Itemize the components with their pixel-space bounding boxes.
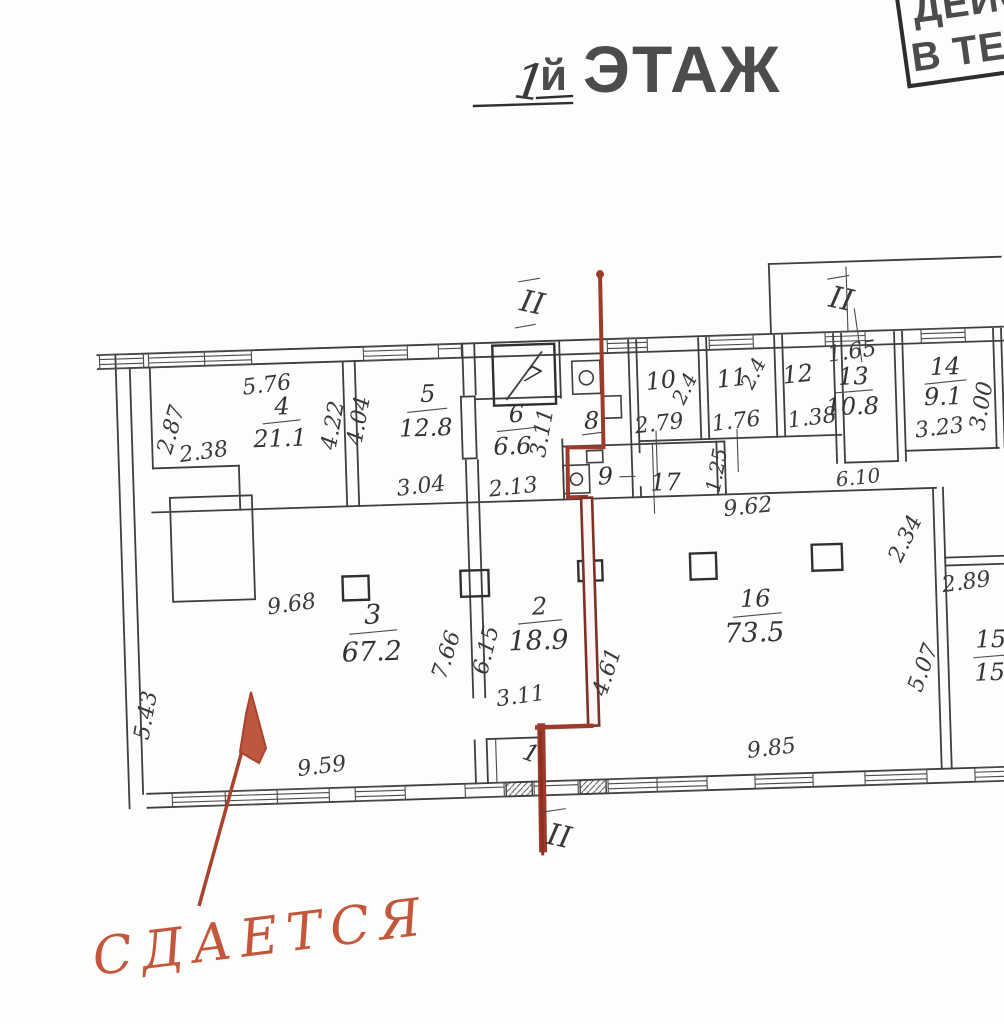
dim: 2.89 bbox=[939, 567, 992, 599]
dim: 3.11 bbox=[495, 681, 547, 712]
annex-outline bbox=[769, 257, 1003, 334]
svg-text:73.5: 73.5 bbox=[724, 617, 785, 650]
bottom-exterior-wall bbox=[147, 766, 1004, 807]
svg-text:12.8: 12.8 bbox=[399, 413, 453, 443]
svg-text:6: 6 bbox=[508, 400, 524, 428]
dim: 4.04 bbox=[342, 394, 375, 448]
dim: 3.23 bbox=[914, 413, 966, 444]
corner-stamp: ДЕЙС В ТЕЧ bbox=[877, 0, 1004, 86]
section-marks: II II II bbox=[513, 268, 875, 857]
room-label-7: 7 bbox=[518, 360, 545, 392]
svg-text:2: 2 bbox=[530, 592, 547, 620]
room-label-3: 3 67.2 bbox=[340, 599, 402, 669]
svg-text:5: 5 bbox=[420, 380, 436, 408]
dim: 2.38 bbox=[177, 437, 230, 469]
room-label-4: 4 21.1 bbox=[251, 392, 307, 454]
room-label-8: 8 bbox=[581, 406, 602, 435]
svg-text:67.2: 67.2 bbox=[341, 636, 402, 669]
room-label-12: 12 bbox=[781, 359, 814, 390]
plan: II II II 4 21.1 5 12.8 6 6.6 bbox=[95, 257, 1004, 871]
section-mark-top: II bbox=[516, 283, 549, 323]
dim: 2.34 bbox=[883, 511, 927, 567]
room-label-16: 16 73.5 bbox=[723, 584, 785, 650]
svg-text:15: 15 bbox=[975, 625, 1004, 654]
dim: 9.59 bbox=[296, 751, 348, 782]
svg-text:14: 14 bbox=[929, 352, 960, 381]
dim: 5.07 bbox=[903, 641, 943, 696]
svg-text:6.6: 6.6 bbox=[493, 432, 532, 461]
svg-text:8: 8 bbox=[584, 406, 600, 434]
dim: 3.04 bbox=[395, 471, 447, 502]
dim: 3.00 bbox=[965, 380, 998, 433]
dim: 1.65 bbox=[826, 336, 878, 367]
arrow-head bbox=[240, 692, 266, 763]
dim: 3.11 bbox=[526, 406, 559, 459]
hatched-pier bbox=[580, 779, 606, 794]
svg-text:9.1: 9.1 bbox=[924, 382, 963, 411]
door-leaf bbox=[461, 396, 477, 458]
room-label-15: 15 15 bbox=[972, 625, 1004, 687]
left-exterior-wall bbox=[115, 354, 143, 808]
dim: 2.13 bbox=[487, 473, 539, 503]
dim: 7.66 bbox=[427, 628, 466, 682]
floor-suffix: й bbox=[540, 51, 567, 100]
dim: 6.15 bbox=[468, 623, 504, 677]
for-rent-note: СДАЕТСЯ bbox=[89, 887, 433, 988]
dim: 1.76 bbox=[710, 406, 762, 437]
dim: 9.62 bbox=[722, 492, 773, 522]
svg-text:18.9: 18.9 bbox=[508, 624, 569, 657]
room-label-14: 14 9.1 bbox=[923, 352, 968, 411]
floor-plan-scan: 1 й ЭТАЖ ДЕЙС В ТЕЧ bbox=[0, 0, 1004, 1024]
section-mark-bottom: II bbox=[543, 817, 576, 857]
room-label-2: 2 18.9 bbox=[507, 591, 569, 657]
sink-icon bbox=[587, 450, 603, 462]
svg-text:21.1: 21.1 bbox=[252, 424, 307, 454]
dim: 9.68 bbox=[266, 589, 318, 620]
title-underline bbox=[474, 103, 572, 106]
svg-text:15: 15 bbox=[974, 658, 1004, 687]
section-mark-top-right: II bbox=[825, 280, 858, 320]
dim: 1.25 bbox=[701, 446, 733, 494]
hatched-pier bbox=[506, 782, 532, 797]
dim: 6.10 bbox=[835, 463, 882, 491]
svg-text:3: 3 bbox=[364, 599, 382, 631]
svg-text:13: 13 bbox=[838, 362, 869, 391]
room-label-5: 5 12.8 bbox=[398, 379, 453, 443]
wc-icon bbox=[603, 396, 622, 419]
page-title: 1 й ЭТАЖ bbox=[474, 32, 781, 113]
room-label-9: 9 bbox=[597, 462, 613, 490]
sink-icon bbox=[572, 360, 601, 394]
dim: 1.38 bbox=[786, 403, 838, 434]
floor-word: ЭТАЖ bbox=[583, 32, 781, 106]
svg-text:16: 16 bbox=[740, 584, 771, 613]
dim: 2.79 bbox=[632, 409, 685, 440]
dim: 9.85 bbox=[746, 733, 798, 764]
dim: 5.43 bbox=[130, 689, 163, 742]
room-label-17: 17 bbox=[650, 468, 682, 497]
